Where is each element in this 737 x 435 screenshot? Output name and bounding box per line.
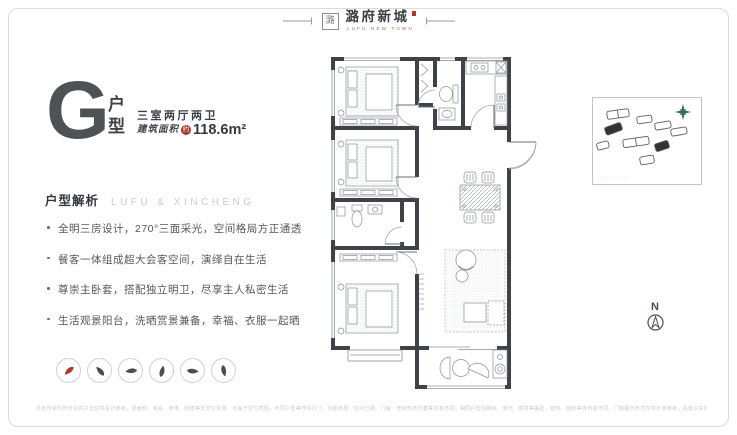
- analysis-subtitle: LUFU & XINCHENG: [111, 197, 255, 208]
- ink-brush-stroke-icon-1: [87, 358, 112, 383]
- bedroom-2: [338, 140, 398, 196]
- area-label: 建筑面积: [137, 121, 179, 137]
- bedroom-3: [338, 254, 398, 334]
- bullet-text: 全明三房设计，270°三面采光，空间格局方正通透: [58, 223, 302, 235]
- compass-rose-icon: [675, 104, 691, 120]
- bullet-item: 全明三房设计，270°三面采光，空间格局方正通透: [45, 221, 302, 236]
- closet: [421, 64, 428, 92]
- site-map-drawing: [593, 98, 699, 182]
- kitchen: [466, 61, 507, 125]
- brand-seal-icon: 潞: [322, 13, 339, 30]
- feature-icon-row: [56, 358, 236, 383]
- living-room: [419, 250, 505, 332]
- ink-brush-stroke-icon-4: [180, 358, 205, 383]
- unit-type-label: 户 型: [108, 97, 125, 136]
- unit-type-char-2: 型: [108, 119, 125, 136]
- bullet-text: 餐客一体组成超大会客空间，演绎自在生活: [58, 254, 267, 266]
- unit-letter: G: [46, 70, 108, 152]
- brand-name-en: LUFU NEW TOWN: [347, 27, 414, 32]
- bullet-text: 尊崇主卧套，搭配独立明卫，尽享主人私密生活: [58, 284, 289, 296]
- bathroom-1: [337, 205, 382, 227]
- bullet-item: 餐客一体组成超大会客空间，演绎自在生活: [45, 252, 302, 267]
- unit-area: 建筑面积 约 118.6m²: [137, 121, 246, 137]
- site-map: ·······: [592, 97, 702, 185]
- north-label: N: [651, 302, 659, 313]
- balcony: [440, 350, 507, 379]
- analysis-header: 户型解析 LUFU & XINCHENG: [45, 190, 255, 209]
- ink-brush-stroke-icon-5: [211, 358, 236, 383]
- feature-bullet-list: 全明三房设计，270°三面采光，空间格局方正通透 餐客一体组成超大会客空间，演绎…: [45, 221, 302, 343]
- highlighted-building: [604, 122, 623, 135]
- bullet-dot: [47, 257, 50, 260]
- bullet-dot: [47, 226, 50, 229]
- bathroom-2: [439, 85, 458, 120]
- bullet-text: 生活观景阳台，洗晒赏景兼备，幸福、衣服一起晒: [58, 315, 300, 327]
- divider-line-left: [283, 16, 315, 26]
- north-compass-icon: [647, 314, 664, 331]
- north-indicator: N: [646, 302, 664, 331]
- area-approx-badge: 约: [181, 125, 191, 135]
- dining-area: [460, 172, 500, 223]
- unit-type-char-1: 户: [108, 97, 125, 114]
- area-value: 118.6m²: [193, 123, 246, 138]
- site-map-legend: ·······: [598, 175, 628, 180]
- brand-name: 潞府新城: [346, 11, 410, 25]
- disclaimer-text: 本宣传资料所涉及的户型仅供设计参考，其面积、家具、家电、绿植等非交付标准，不属于…: [36, 405, 707, 412]
- highlighted-building: [654, 140, 670, 152]
- ink-brush-stroke-icon-3: [149, 358, 174, 383]
- divider-line-right: [423, 16, 455, 26]
- bullet-dot: [47, 318, 50, 321]
- bullet-item: 生活观景阳台，洗晒赏景兼备，幸福、衣服一起晒: [45, 313, 302, 328]
- red-seal-icon: [412, 11, 416, 16]
- analysis-title: 户型解析: [45, 190, 99, 209]
- floor-plan: [325, 50, 545, 400]
- red-brush-stroke-icon: [56, 358, 81, 383]
- bullet-dot: [47, 287, 50, 290]
- bullet-item: 尊崇主卧套，搭配独立明卫，尽享主人私密生活: [45, 282, 302, 297]
- bedroom-1: [338, 67, 398, 125]
- brand-logo: 潞 潞府新城 LUFU NEW TOWN: [0, 11, 737, 31]
- ink-brush-stroke-icon-2: [118, 358, 143, 383]
